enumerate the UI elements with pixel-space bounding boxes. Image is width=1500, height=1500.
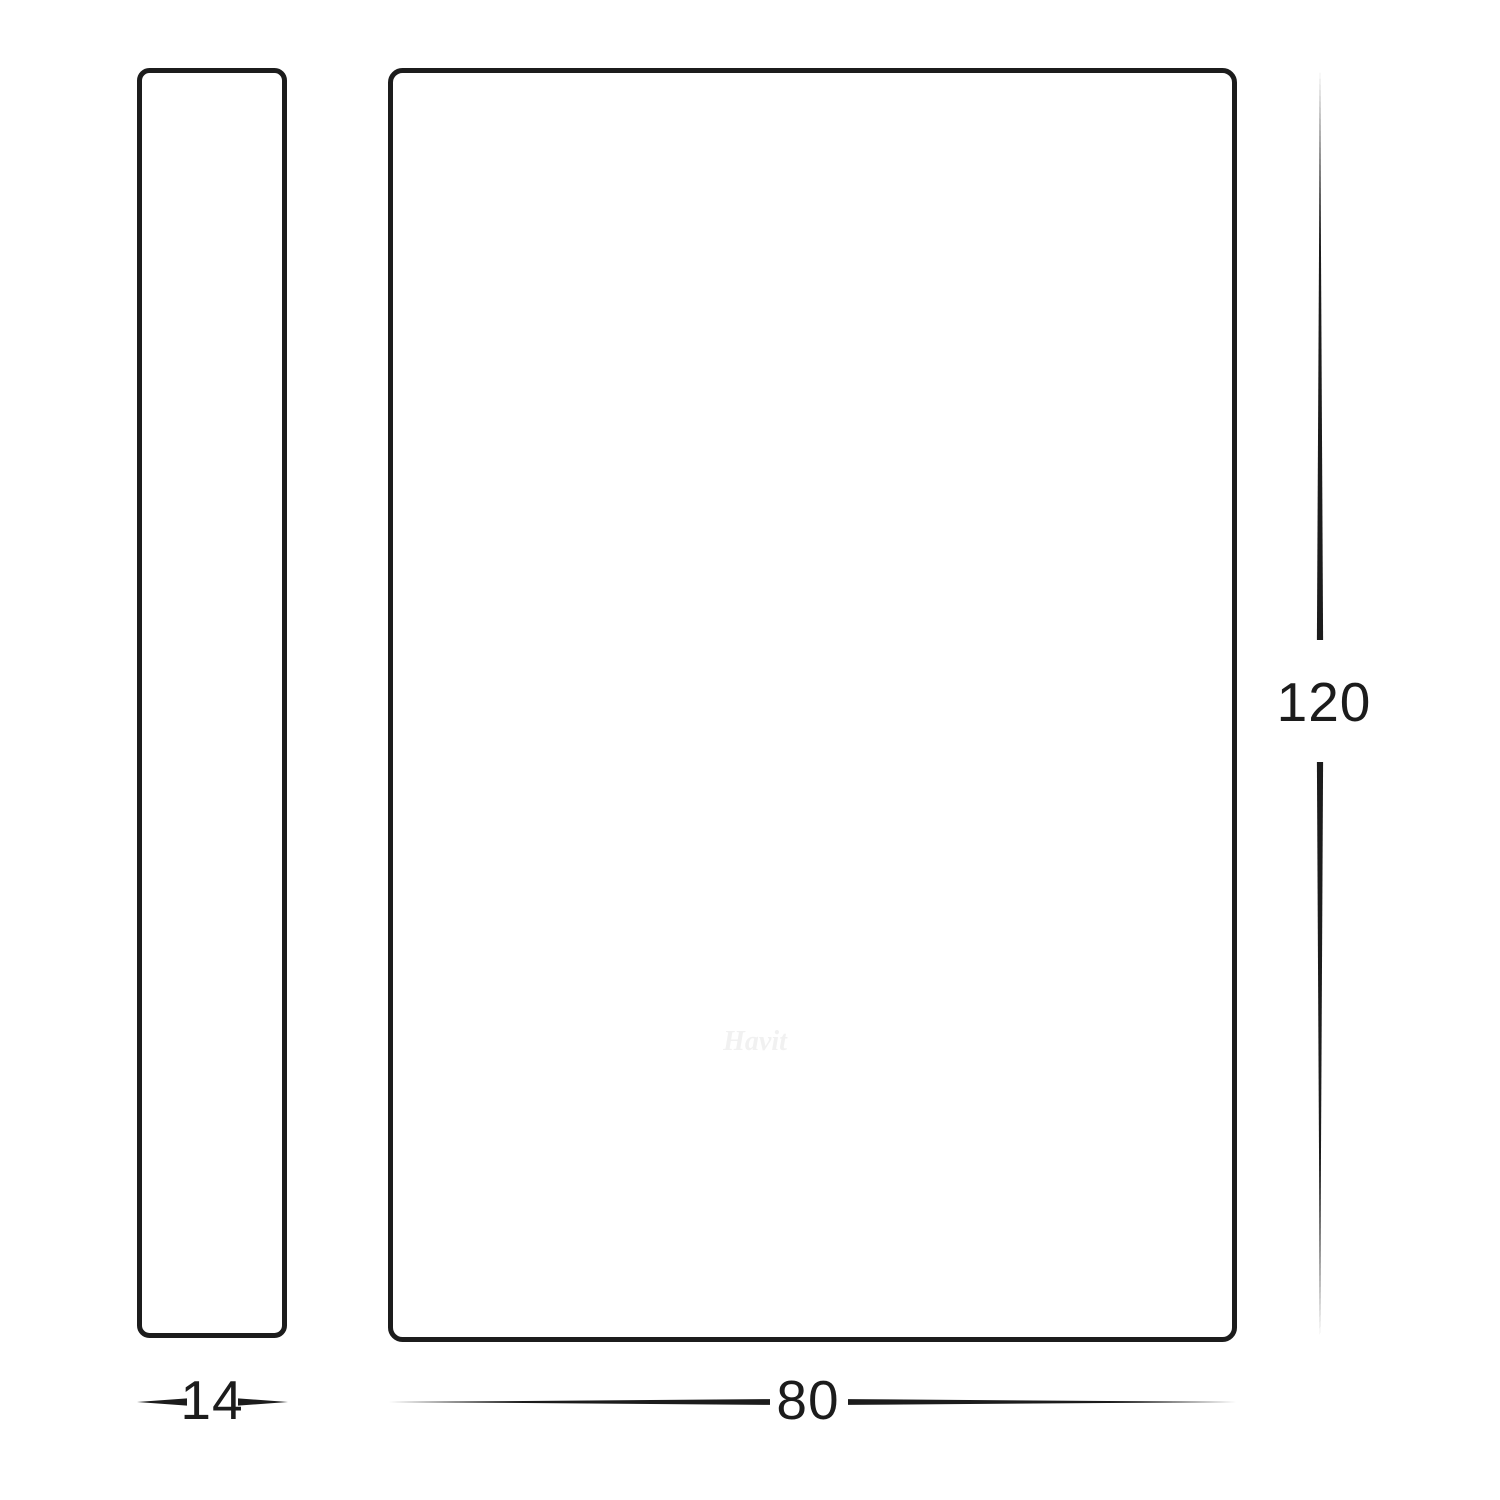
dim-120-arrow-bottom-icon <box>1317 762 1323 1336</box>
side-width-dimension-label: 14 <box>180 1368 243 1432</box>
dimension-drawing: 14 80 120 Havit <box>0 0 1500 1500</box>
dim-80-arrow-right-icon <box>848 1399 1236 1405</box>
dim-80-arrow-left-icon <box>389 1399 770 1405</box>
dim-14-arrow-right-icon <box>238 1398 288 1405</box>
drawing-lines <box>0 0 1500 1500</box>
dim-120-arrow-top-icon <box>1317 70 1323 640</box>
front-height-dimension-label: 120 <box>1277 670 1372 734</box>
side-view-outline <box>140 71 285 1336</box>
front-width-dimension-label: 80 <box>776 1368 839 1432</box>
brand-watermark: Havit <box>723 1026 787 1058</box>
front-view-outline <box>391 71 1235 1340</box>
